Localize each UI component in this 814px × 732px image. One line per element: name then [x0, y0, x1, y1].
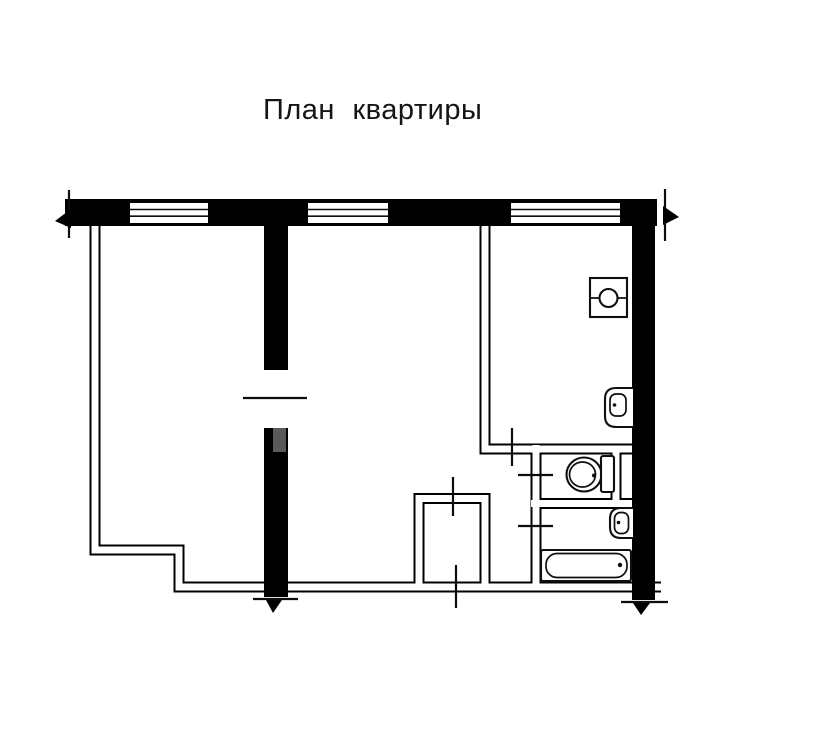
window-1 [130, 203, 208, 223]
floor-plan-drawing [0, 0, 814, 732]
left-and-bottom-wall [95, 222, 661, 587]
washbasin-icon [610, 508, 633, 538]
floor-plan-page: План квартиры [0, 0, 814, 732]
section-mark-top-right [663, 189, 679, 241]
right-bearing-wall [632, 226, 655, 600]
window-3 [511, 203, 620, 223]
section-mark-bottom-middle [253, 599, 298, 613]
door-opening-marks [243, 398, 553, 608]
kitchen-sink-icon [605, 388, 633, 427]
section-mark-top-left [55, 190, 71, 238]
window-2 [308, 203, 388, 223]
section-mark-bottom-right [621, 602, 668, 615]
toilet-icon [567, 456, 615, 492]
watermark-stub [273, 428, 286, 452]
thin-walls-outline [95, 222, 661, 590]
top-facade-wall [65, 199, 657, 226]
stove-icon [590, 278, 627, 317]
bathtub-icon [541, 550, 631, 581]
